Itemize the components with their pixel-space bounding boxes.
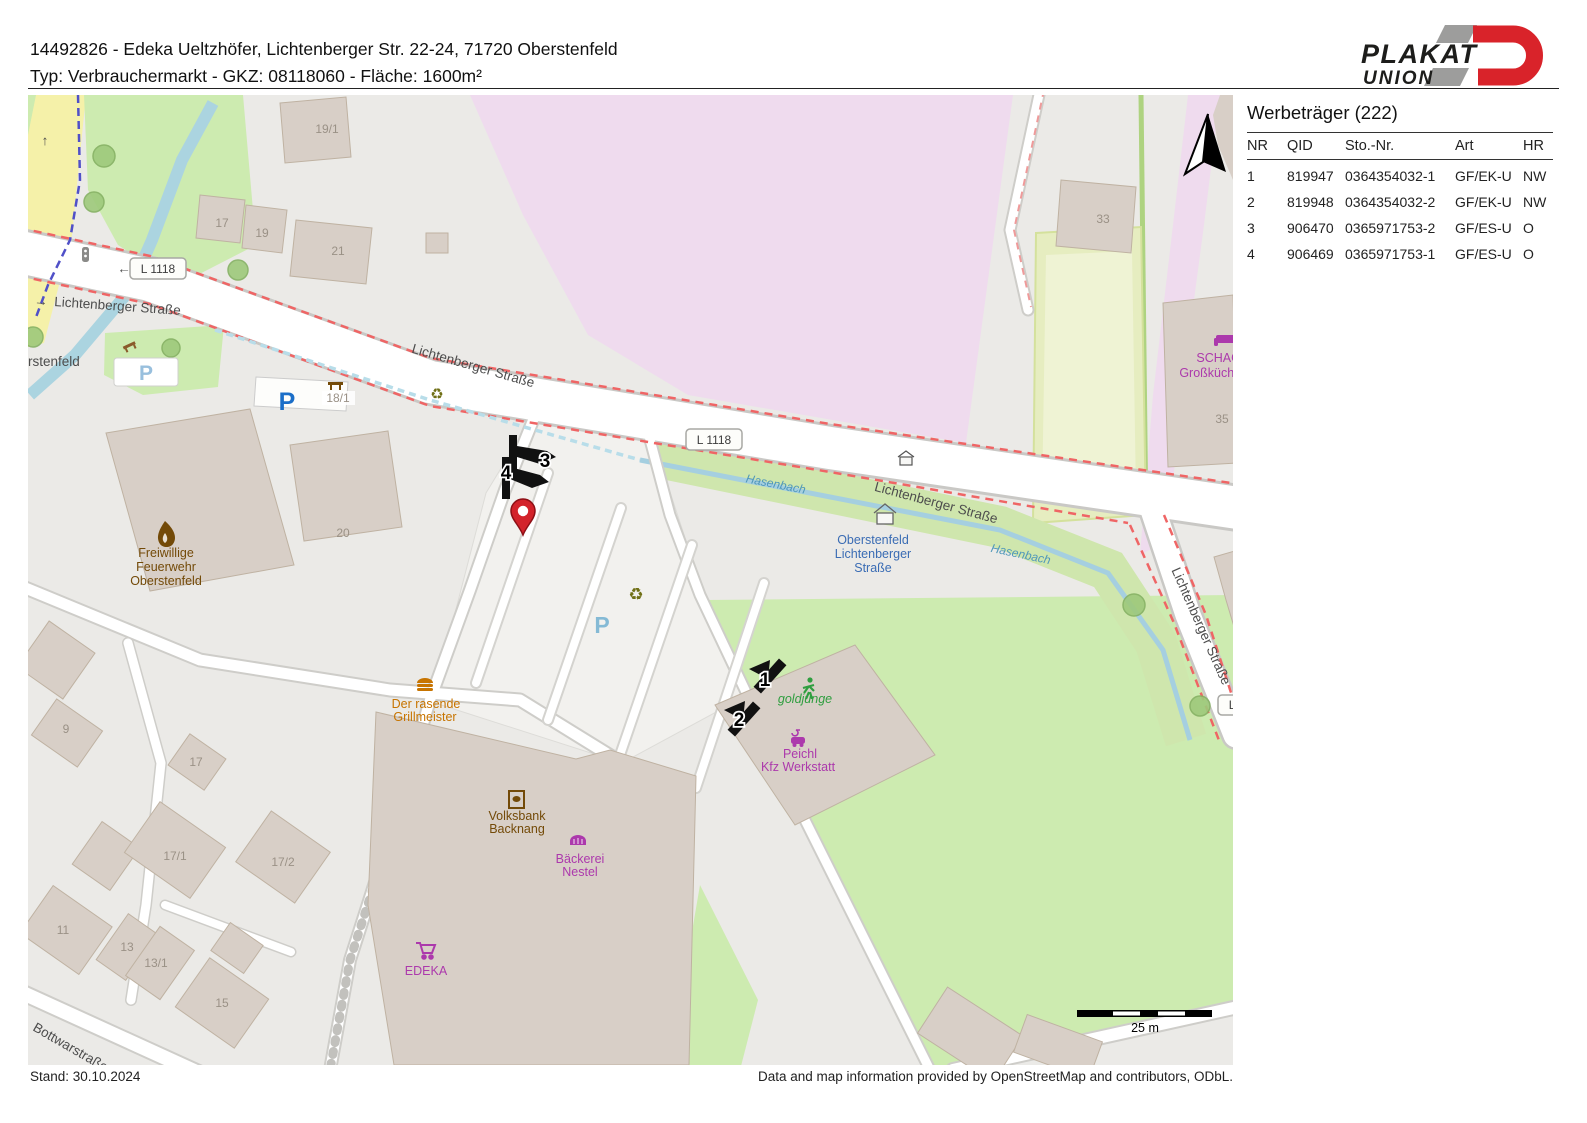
cell-art: GF/ES-U [1455,215,1523,241]
header-divider [28,88,1559,89]
header: 14492826 - Edeka Ueltzhöfer, Lichtenberg… [30,36,618,90]
svg-text:Grillmeister: Grillmeister [393,710,456,724]
col-header-hr: HR [1523,133,1553,159]
place-label-partial: rstenfeld [28,354,80,369]
col-header-art: Art [1455,133,1523,159]
svg-text:L 1118: L 1118 [1229,698,1233,712]
poi-feuerwehr-label: Freiwillige Feuerwehr Oberstenfeld [130,546,202,588]
svg-text:2: 2 [734,710,745,731]
cell-stonr: 0364354032-1 [1345,163,1455,189]
housenumber: 9 [63,722,70,736]
panel-title: Werbeträger (222) [1247,102,1553,133]
recycling-icon: ♻ [430,386,443,403]
housenumber: 20 [336,526,350,540]
cell-hr: NW [1523,189,1553,215]
logo-word-plakat: PLAKAT [1361,39,1478,69]
svg-text:Der rasende: Der rasende [392,697,461,711]
cell-qid: 819948 [1287,189,1345,215]
parking-icon: P [279,388,296,416]
cell-stonr: 0365971753-2 [1345,215,1455,241]
col-header-qid: QID [1287,133,1345,159]
parking-icon: P [114,358,178,386]
housenumber: 35 [1215,412,1229,426]
col-header-stonr: Sto.-Nr. [1345,133,1455,159]
table-row: 3 906470 0365971753-2 GF/ES-U O [1247,215,1553,241]
svg-text:P: P [139,362,153,385]
housenumber: 21 [331,244,345,258]
poi-edeka-label: EDEKA [405,964,448,978]
building-edeka [368,712,696,1065]
burger-icon [417,678,433,691]
logo-red-d-shape [1473,34,1535,77]
oneway-arrow-icon: ↑ [42,133,49,148]
table-header-row: NR QID Sto.-Nr. Art HR [1247,133,1553,160]
svg-text:Bäckerei: Bäckerei [556,852,605,866]
housenumber: 17/2 [271,855,295,869]
housenumber: 33 [1096,212,1110,226]
cell-nr: 3 [1247,215,1287,241]
svg-text:4: 4 [501,463,512,484]
housenumber: 19 [255,226,269,240]
housenumber: 17/1 [163,849,187,863]
road-ref-badge: L 1118 [130,258,186,279]
parking-icon: P [594,612,609,638]
report-page: 14492826 - Edeka Ueltzhöfer, Lichtenberg… [0,0,1587,1123]
table-row: 1 819947 0364354032-1 GF/EK-U NW [1247,160,1553,189]
map-canvas: → Lichtenberger Straße ← ↑ L 1118 L 1118… [28,95,1233,1065]
svg-text:Lichtenberger: Lichtenberger [835,547,911,561]
svg-text:Großküchente-: Großküchente- [1179,366,1233,380]
cell-stonr: 0364354032-2 [1345,189,1455,215]
svg-text:Peichl: Peichl [783,747,817,761]
header-title-line1: 14492826 - Edeka Ueltzhöfer, Lichtenberg… [30,36,618,63]
housenumber: 18/1 [326,391,350,405]
cell-hr: O [1523,241,1553,267]
svg-text:Feuerwehr: Feuerwehr [136,560,196,574]
road-ref-badge: L 1118 [1218,695,1233,715]
road-ref-badge: L 1118 [686,429,742,450]
svg-text:Freiwillige: Freiwillige [138,546,194,560]
table-row: 2 819948 0364354032-2 GF/EK-U NW [1247,189,1553,215]
footer-stand: Stand: 30.10.2024 [30,1069,140,1084]
plakat-union-logo-icon: PLAKAT UNION [1345,14,1557,88]
col-header-nr: NR [1247,133,1287,159]
poi-goldjunge-label: goldjunge [778,692,832,706]
svg-text:1: 1 [760,670,771,691]
scale-label: 25 m [1131,1021,1159,1035]
table-row: 4 906469 0365971753-1 GF/ES-U O [1247,241,1553,267]
cell-qid: 819947 [1287,163,1345,189]
cell-hr: NW [1523,163,1553,189]
svg-text:Oberstenfeld: Oberstenfeld [130,574,202,588]
svg-text:Kfz Werkstatt: Kfz Werkstatt [761,760,836,774]
header-title-line2: Typ: Verbrauchermarkt - GKZ: 08118060 - … [30,63,618,90]
housenumber: 17 [215,216,229,230]
cell-stonr: 0365971753-1 [1345,241,1455,267]
housenumber: 13/1 [144,956,168,970]
cell-nr: 2 [1247,189,1287,215]
cell-art: GF/EK-U [1455,163,1523,189]
housenumber: 17 [189,755,203,769]
cell-hr: O [1523,215,1553,241]
svg-text:Backnang: Backnang [489,822,545,836]
cell-qid: 906469 [1287,241,1345,267]
poi-volksbank-label: Volksbank Backnang [489,809,547,836]
svg-text:L 1118: L 1118 [697,433,732,447]
cell-qid: 906470 [1287,215,1345,241]
svg-text:SCHAGRO: SCHAGRO [1196,351,1233,365]
housenumber: 13 [120,940,134,954]
company-logo: PLAKAT UNION [1345,14,1557,88]
street-label-lichtenberger-w: → [34,293,49,309]
cell-art: GF/ES-U [1455,241,1523,267]
poi-grillmeister-label: Der rasende Grillmeister [392,697,461,724]
oneway-arrow-icon: ← [117,261,131,276]
housenumber: 11 [57,923,70,937]
traffic-light-icon [82,247,89,262]
svg-text:Straße: Straße [854,561,892,575]
svg-text:Oberstenfeld: Oberstenfeld [837,533,909,547]
cell-art: GF/EK-U [1455,189,1523,215]
footer-credit: Data and map information provided by Ope… [600,1069,1233,1084]
logo-word-union: UNION [1363,68,1434,88]
werbetraeger-panel: Werbeträger (222) NR QID Sto.-Nr. Art HR… [1247,102,1553,267]
poi-baeckerei-label: Bäckerei Nestel [556,852,605,879]
cell-nr: 1 [1247,163,1287,189]
cell-nr: 4 [1247,241,1287,267]
svg-text:L 1118: L 1118 [141,262,176,276]
recycling-icon: ♻ [628,585,643,604]
housenumber: 15 [215,996,229,1010]
housenumber: 19/1 [315,122,339,136]
svg-text:Nestel: Nestel [562,865,597,879]
svg-text:Volksbank: Volksbank [489,809,547,823]
osm-map: → Lichtenberger Straße ← ↑ L 1118 L 1118… [28,95,1233,1065]
svg-text:3: 3 [540,451,551,472]
